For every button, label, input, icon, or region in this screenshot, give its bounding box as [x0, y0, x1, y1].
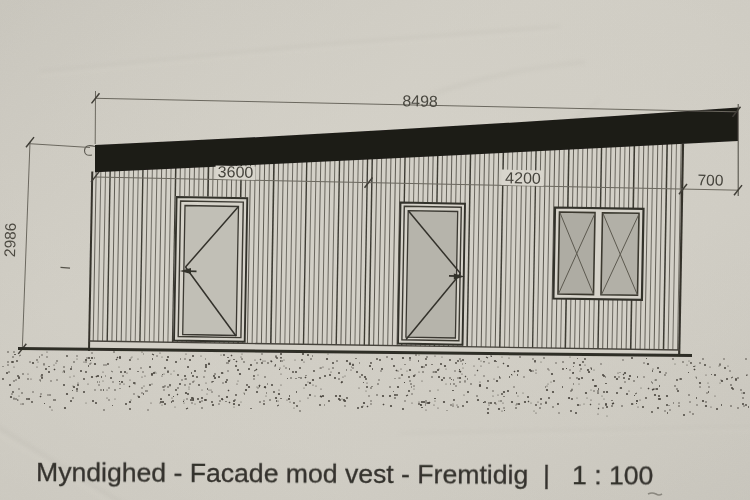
svg-text:700: 700	[697, 171, 724, 189]
svg-text:2986: 2986	[1, 222, 19, 257]
svg-text:8498: 8498	[402, 92, 438, 110]
svg-text:Myndighed - Facade mod vest -: Myndighed - Facade mod vest - Fremtidig …	[36, 457, 654, 491]
svg-text:4200: 4200	[505, 169, 541, 187]
svg-text:3600: 3600	[218, 163, 254, 181]
